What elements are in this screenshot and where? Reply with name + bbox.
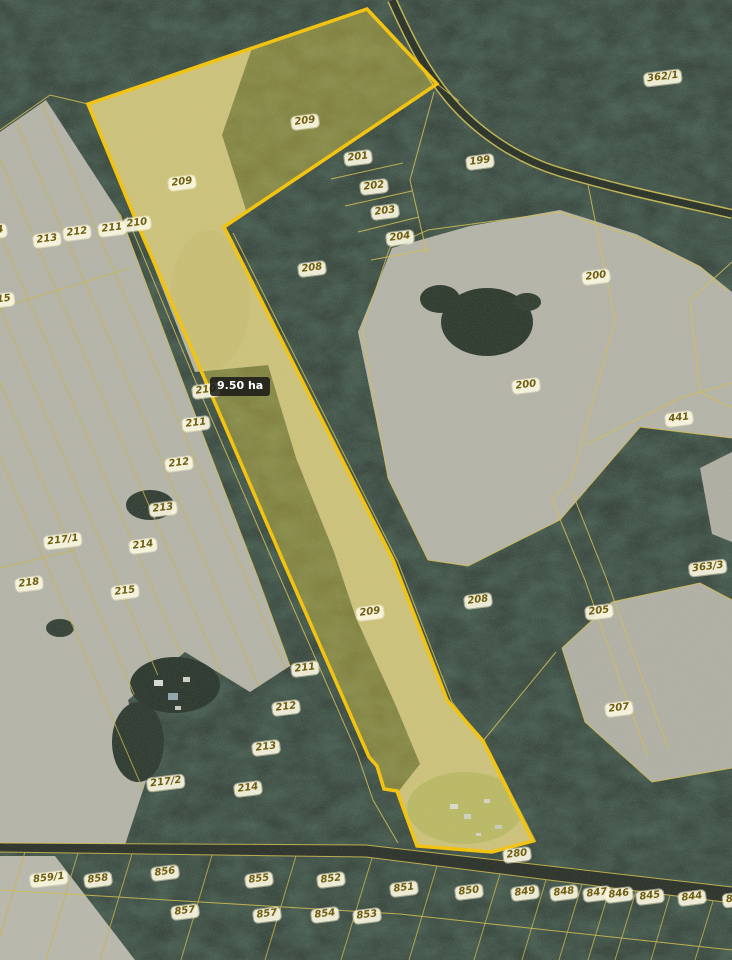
aerial-imagery[interactable] — [0, 0, 732, 960]
cadastral-map[interactable]: 362/120920119920920220321021142122042132… — [0, 0, 732, 960]
parcel-area-tag: 9.50 ha — [210, 377, 270, 396]
